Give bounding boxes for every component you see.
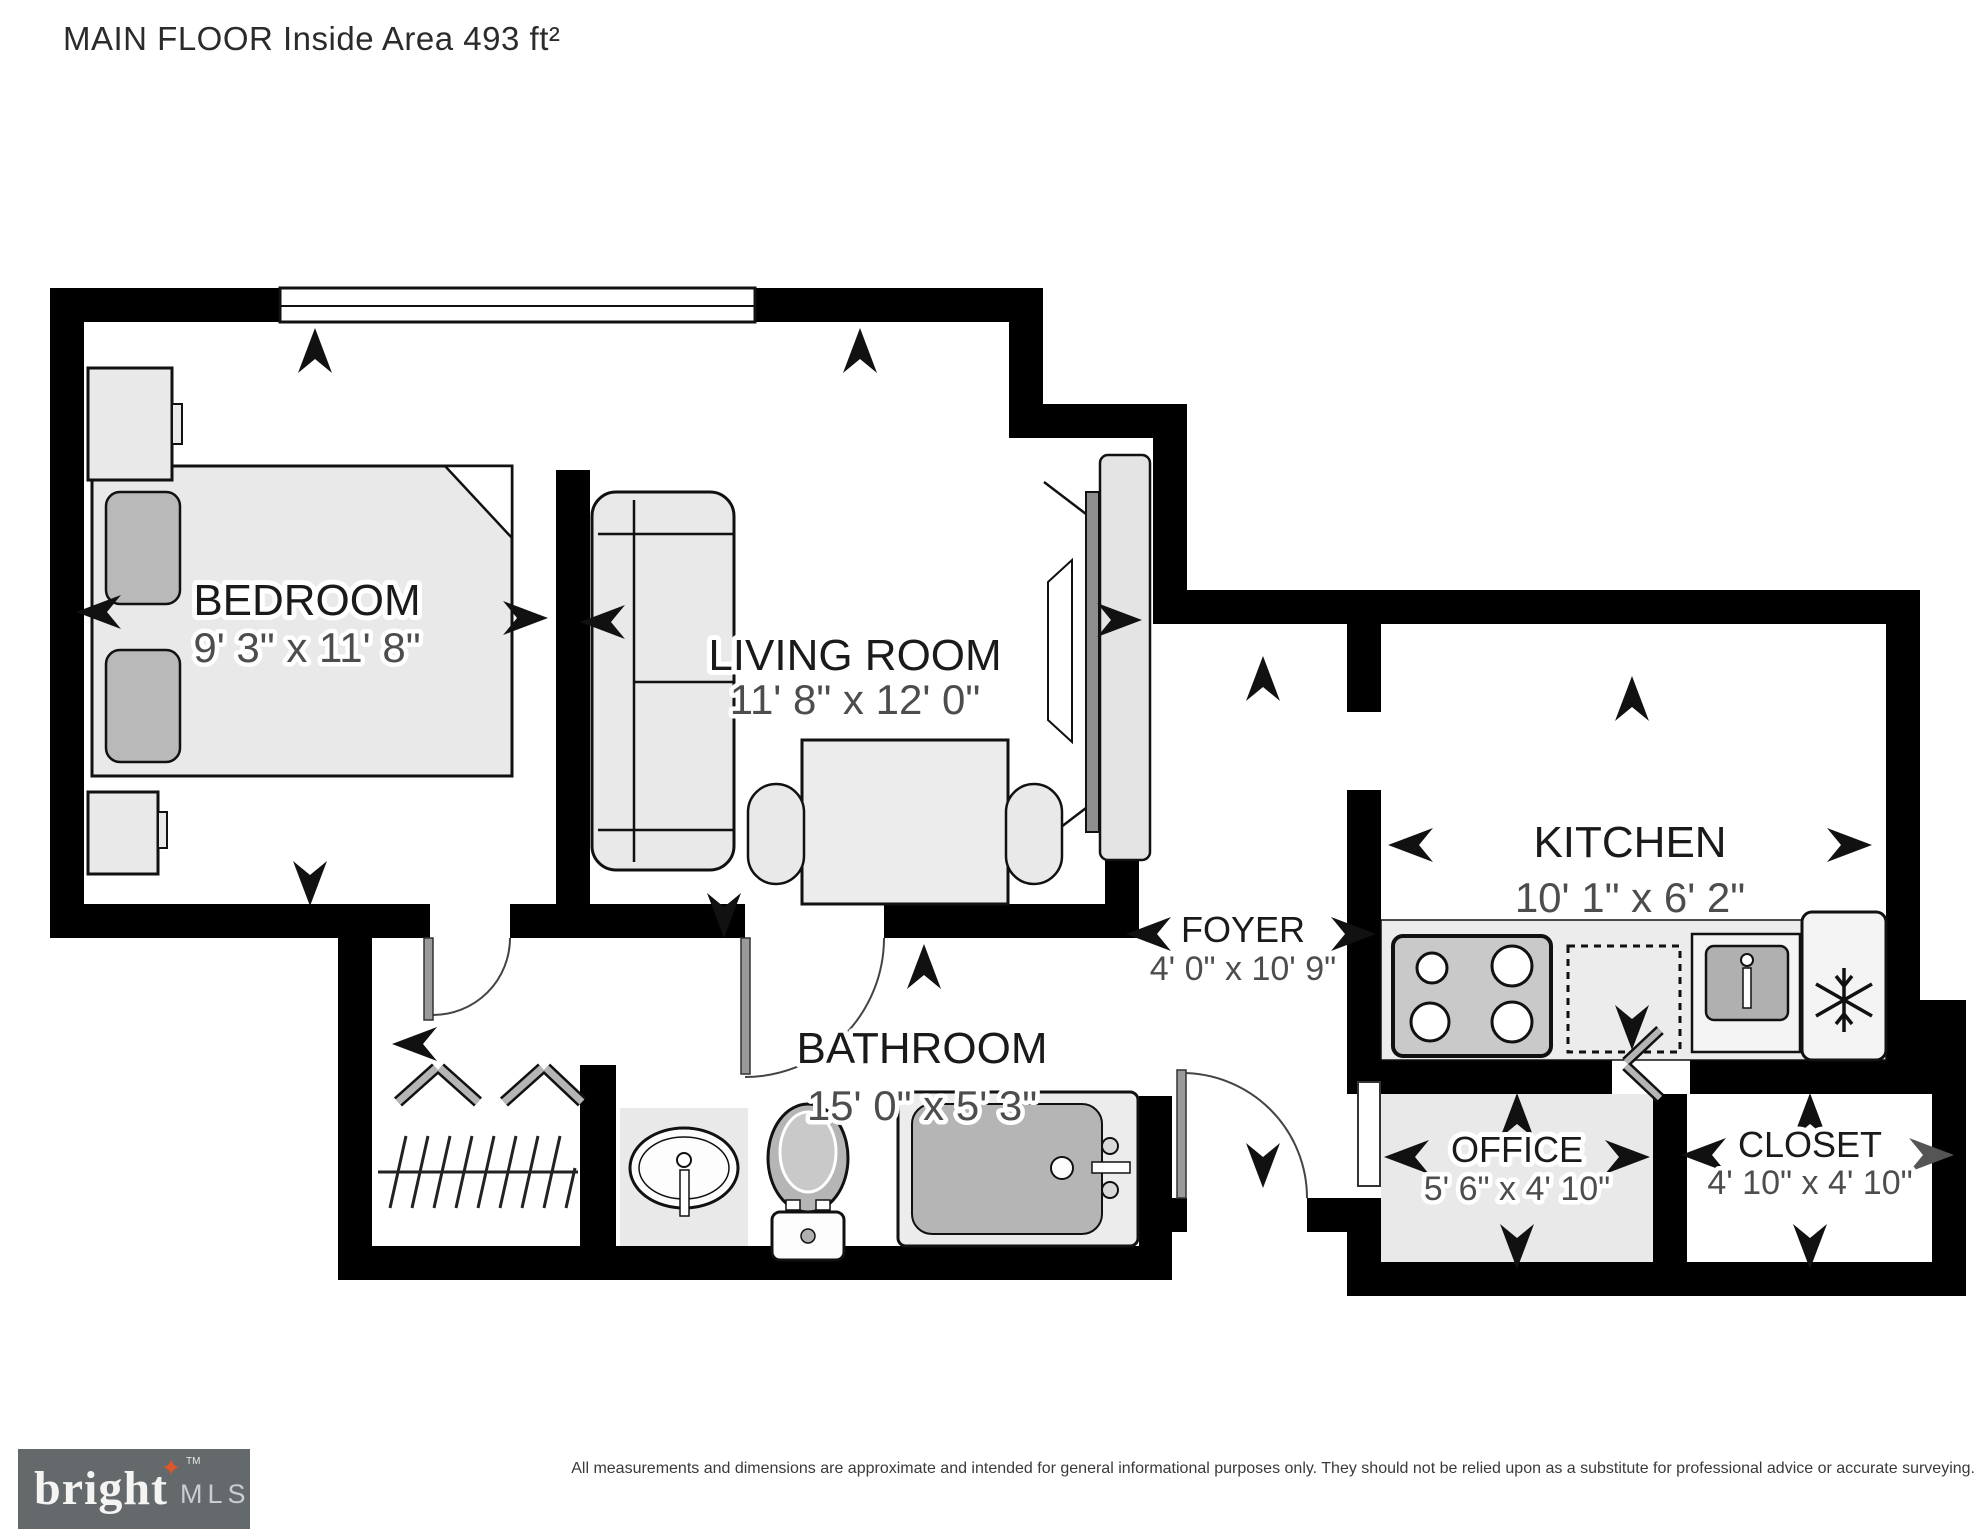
office-label: OFFICE: [1451, 1129, 1583, 1170]
entry-door-opening: [1187, 1198, 1307, 1232]
bathroom-door-opening: [745, 904, 884, 938]
living-room-dims: 11' 8" x 12' 0": [730, 676, 981, 723]
bathroom-label: BATHROOM: [797, 1024, 1048, 1073]
bathroom-dims: 15' 0" x 5' 3": [807, 1082, 1037, 1129]
nightstand-bottom: [88, 792, 167, 874]
brightmls-logo: bright ✦ TM MLS: [18, 1449, 250, 1529]
chair: [748, 784, 804, 884]
kitchen-sink: [1692, 934, 1800, 1052]
logo-mls-text: MLS: [180, 1479, 251, 1510]
bedroom-door-opening: [430, 904, 510, 938]
chair: [1006, 784, 1062, 884]
bedroom-label: BEDROOM: [193, 576, 420, 625]
foyer-label: FOYER: [1181, 909, 1305, 950]
disclaimer-text: All measurements and dimensions are appr…: [571, 1460, 1975, 1478]
star-icon: ✦: [161, 1457, 181, 1481]
linen-closet-wall: [580, 1065, 616, 1246]
nightstand-top: [88, 368, 182, 480]
kitchen-dims: 10' 1" x 6' 2": [1515, 874, 1745, 921]
office-door-leaf: [1358, 1082, 1380, 1186]
kitchen-label: KITCHEN: [1533, 818, 1726, 867]
pillow: [106, 650, 180, 762]
closet-label: CLOSET: [1738, 1124, 1882, 1165]
foyer-floor: [1139, 624, 1347, 1096]
logo-wordmark: bright: [34, 1465, 168, 1513]
office-dims: 5' 6" x 4' 10": [1424, 1170, 1610, 1208]
sofa: [592, 492, 734, 870]
closet-dims: 4' 10" x 4' 10": [1707, 1164, 1912, 1202]
floorplan-page: MAIN FLOOR Inside Area 493 ft²: [0, 0, 1987, 1535]
bedroom-living-opening: [556, 322, 590, 470]
refrigerator: [1802, 912, 1886, 1060]
kitchen-entry-opening: [1347, 712, 1381, 790]
window: [280, 288, 755, 322]
living-room-label: LIVING ROOM: [708, 631, 1001, 680]
stove: [1393, 936, 1551, 1056]
tv-screen: [1086, 492, 1099, 832]
foyer-dims: 4' 0" x 10' 9": [1150, 950, 1336, 988]
pillow: [106, 492, 180, 604]
floorplan-drawing: BEDROOM 9' 3" x 11' 8" LIVING ROOM 11' 8…: [0, 0, 1987, 1535]
bedroom-dims: 9' 3" x 11' 8": [193, 624, 420, 671]
dishwasher: [1568, 946, 1680, 1052]
trademark-label: TM: [186, 1457, 200, 1467]
